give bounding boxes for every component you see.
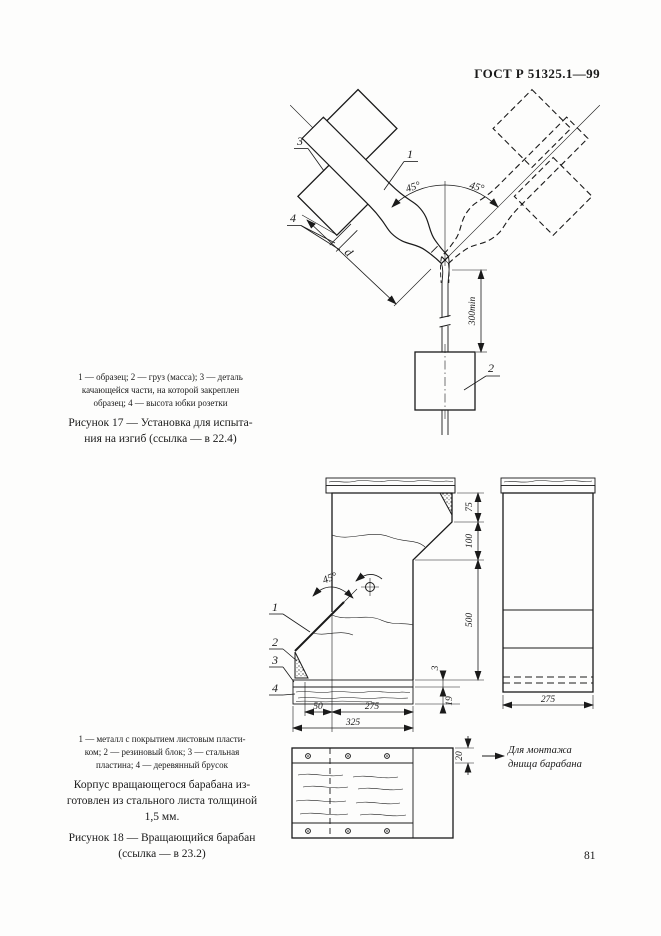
dim-500: 500 — [465, 613, 475, 628]
callout-1: 1 — [407, 147, 413, 161]
rivet-holes — [306, 754, 390, 834]
dim-50: 50 — [313, 702, 323, 712]
fig17-caption-line: ния на изгиб (ссылка — в 22.4) — [57, 431, 264, 447]
drum-sheet-view: 20 Для монтажа днища барабана — [292, 736, 582, 838]
page-number: 81 — [584, 850, 596, 862]
callout-3: 3 — [296, 134, 303, 148]
weight-block — [415, 344, 475, 435]
dim-side-275: 275 — [541, 695, 556, 705]
fig18-legend-line: 1 — металл с покрытием листовым пласти- — [57, 733, 267, 746]
rubber-block-bottom — [295, 652, 308, 678]
flexible-cord — [440, 257, 451, 353]
fig18-legend-line: ком; 2 — резиновый блок; 3 — стальная — [57, 746, 267, 759]
fig18-caption-line: (ссылка — в 23.2) — [57, 846, 267, 862]
callout-2: 2 — [488, 361, 494, 375]
rotation-axis-symbol — [356, 574, 382, 596]
dim-300min-label: 300min — [468, 297, 478, 327]
dim-20: 20 — [455, 751, 465, 761]
fig18-caption-line: Рисунок 18 — Вращающийся барабан — [57, 830, 267, 846]
drum-section-view: 45° 1 2 3 4 75 100 500 — [269, 478, 484, 732]
dim-275: 275 — [365, 702, 380, 712]
fig17-legend-line: качающейся части, на которой закреплен — [57, 384, 264, 397]
page-title: ГОСТ Р 51325.1—99 — [340, 66, 600, 82]
document-page: ГОСТ Р 51325.1—99 — [0, 0, 661, 936]
figure-17-caption-block: 1 — образец; 2 — груз (масса); 3 — детал… — [57, 371, 264, 447]
dim-325: 325 — [345, 718, 361, 728]
dim-19: 19 — [445, 696, 455, 706]
steel-plate — [293, 680, 413, 687]
drum-side-view: 275 — [501, 478, 595, 709]
mounting-note-line: днища барабана — [508, 759, 582, 770]
angle-left-label: 45° — [405, 180, 423, 195]
fig18-note-line: 1,5 мм. — [57, 809, 267, 825]
angle-45-label: 45° — [321, 571, 339, 587]
swing-assembly-dashed — [400, 63, 642, 305]
dim-3: 3 — [431, 665, 441, 671]
fig18-legend-line: пластина; 4 — деревянный брусок — [57, 759, 267, 772]
callout-2: 2 — [272, 635, 278, 649]
callout-4: 4 — [290, 211, 296, 225]
swing-assembly-solid — [240, 63, 490, 313]
figure-18-caption-block: 1 — металл с покрытием листовым пласти- … — [57, 733, 267, 862]
fig17-legend-line: образец; 4 — высота юбки розетки — [57, 397, 264, 410]
callout-3: 3 — [271, 653, 278, 667]
mounting-note-line: Для монтажа — [507, 745, 572, 756]
dimension-thickness: 3 19 — [415, 665, 460, 712]
dimension-300min: 300min — [452, 270, 487, 352]
fig18-note-line: Корпус вращающегося барабана из- — [57, 777, 267, 793]
rubber-block-top — [440, 493, 452, 515]
dim-d-label: d — [342, 245, 357, 260]
figure-17-drawing: 45° 45° d 3 1 4 — [272, 85, 618, 448]
fig17-caption-line: Рисунок 17 — Установка для испыта- — [57, 415, 264, 431]
callout-4: 4 — [272, 681, 278, 695]
dim-75: 75 — [465, 502, 475, 512]
drum-body-outline — [332, 493, 452, 680]
callout-1: 1 — [272, 600, 278, 614]
angle-right-label: 45° — [468, 180, 486, 195]
fig18-note-line: готовлен из стального листа толщиной — [57, 793, 267, 809]
dimension-chain-right: 75 100 500 — [415, 493, 484, 680]
fig17-legend-line: 1 — образец; 2 — груз (масса); 3 — детал… — [57, 371, 264, 384]
figure-18-drawing: 45° 1 2 3 4 75 100 500 — [258, 465, 661, 860]
dim-100: 100 — [465, 534, 475, 549]
dimension-chain-bottom: 50 275 325 — [293, 613, 413, 732]
